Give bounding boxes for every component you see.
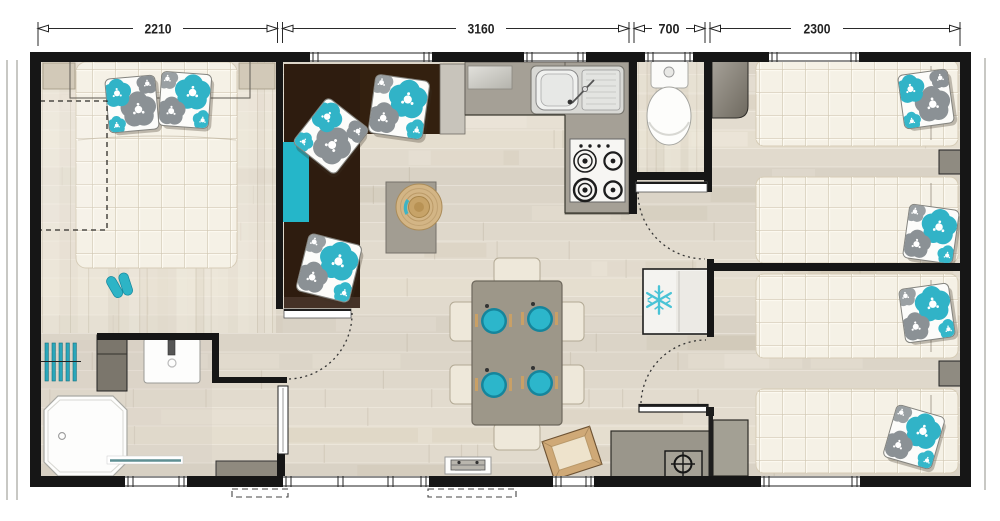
svg-text:3160: 3160 [468, 22, 495, 37]
svg-text:2210: 2210 [145, 22, 172, 37]
svg-text:2300: 2300 [804, 22, 831, 37]
svg-text:700: 700 [659, 22, 680, 37]
